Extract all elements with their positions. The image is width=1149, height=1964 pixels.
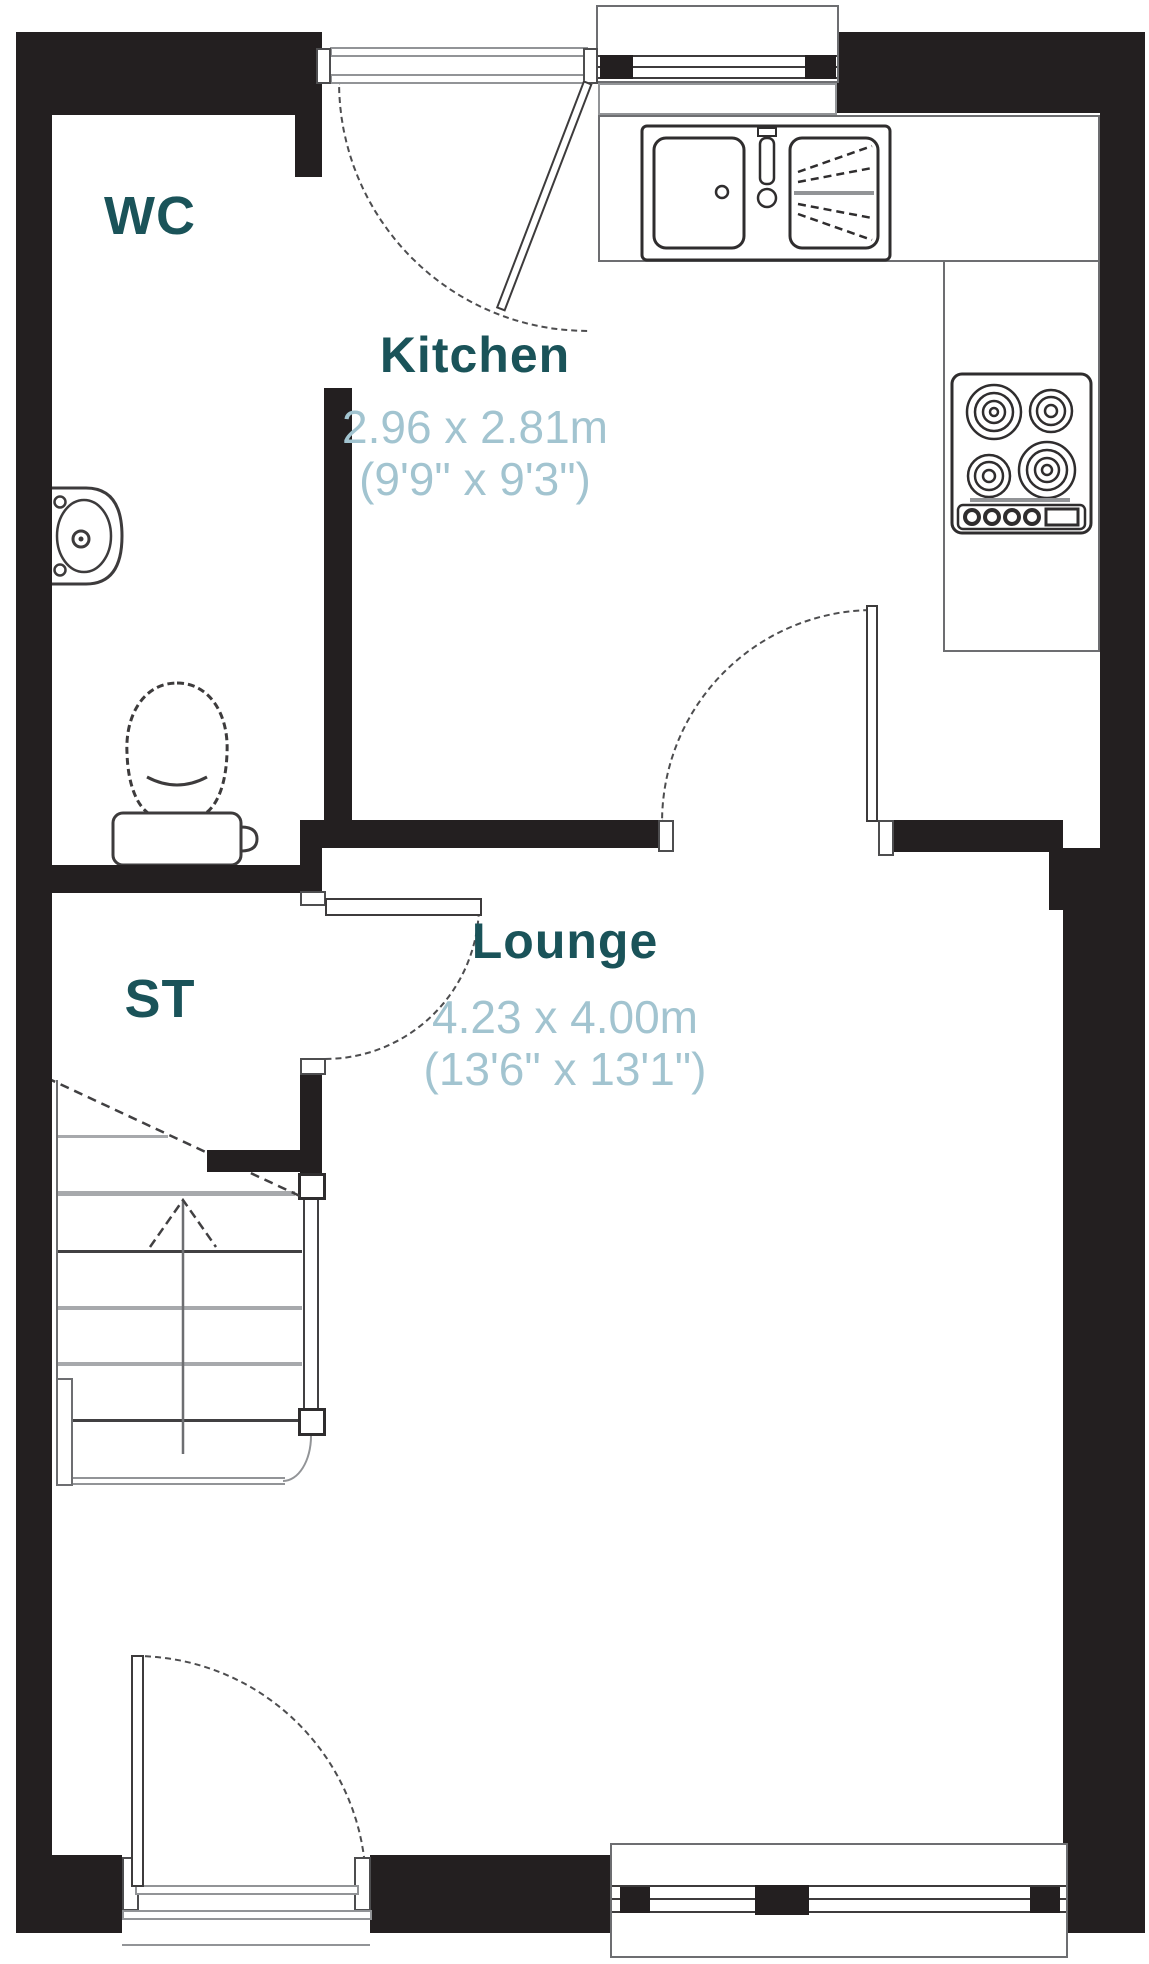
st-door-jamb: [300, 1058, 326, 1075]
lounge-window-mullion: [755, 1885, 809, 1915]
wall-wc-kitchen-pillar: [295, 82, 322, 177]
kitchen-window-sill: [598, 83, 837, 115]
wall-top-left: [16, 32, 322, 115]
lounge-dims-imperial: (13'6" x 13'1"): [380, 1042, 750, 1096]
wall-bottom-right: [1065, 1855, 1145, 1933]
toilet: [105, 675, 260, 870]
entrance-door-frame: [330, 47, 588, 57]
entrance-door-jamb: [316, 48, 331, 84]
kitchen-sink: [640, 124, 892, 262]
wall-left: [16, 32, 52, 1933]
front-door-threshold: [122, 1910, 372, 1920]
kitchen-window-cap: [805, 55, 836, 79]
kitchen-dims-metric: 2.96 x 2.81m: [295, 400, 655, 454]
wall-bottom-left: [16, 1855, 122, 1933]
entrance-door-swing-arc: [338, 82, 588, 332]
front-door-jamb: [354, 1857, 371, 1911]
lounge-label: Lounge: [415, 912, 715, 970]
wall-lounge-right-of-door: [892, 820, 1063, 852]
wall-right-lounge: [1063, 908, 1145, 1933]
front-door-threshold: [135, 1885, 359, 1895]
wc-label: WC: [75, 185, 225, 247]
lounge-window-glazing: [612, 1885, 1066, 1913]
lounge-dims-metric: 4.23 x 4.00m: [390, 990, 740, 1044]
wall-connector: [300, 848, 322, 893]
wall-kitchen-lounge: [300, 820, 672, 848]
kitchen-window-cap: [600, 55, 633, 79]
floor-plan: WC Kitchen 2.96 x 2.81m (9'9" x 9'3") ST…: [0, 0, 1149, 1964]
front-door-leaf: [131, 1655, 144, 1887]
wall-st-right: [300, 1060, 322, 1173]
wall-right-kitchen: [1100, 32, 1145, 855]
st-label: ST: [95, 968, 225, 1030]
wall-bottom-mid: [370, 1855, 620, 1933]
wash-basin: [48, 486, 126, 586]
lounge-window-cap: [620, 1887, 650, 1913]
kitchen-door-leaf: [866, 605, 878, 822]
st-door-jamb: [300, 891, 326, 906]
wall-right-step: [1049, 848, 1145, 910]
wall-top-right: [837, 32, 1145, 113]
entrance-door-frame: [330, 74, 588, 84]
staircase-annotations: [40, 1070, 320, 1470]
wall-wc-st: [16, 865, 300, 893]
kitchen-door-swing-arc: [661, 609, 874, 822]
kitchen-label: Kitchen: [325, 326, 625, 384]
kitchen-door-jamb: [878, 820, 894, 856]
front-door-swing-arc: [135, 1655, 367, 1887]
stair-bottom-rail: [73, 1477, 285, 1485]
kitchen-window-glazing: [598, 55, 837, 79]
wall-understair: [207, 1150, 300, 1172]
hob: [950, 372, 1093, 535]
front-door-outer-line: [122, 1944, 370, 1946]
lounge-window-cap: [1030, 1887, 1060, 1913]
kitchen-door-jamb: [658, 820, 674, 852]
kitchen-dims-imperial: (9'9" x 9'3"): [295, 452, 655, 506]
entrance-door-jamb: [583, 48, 598, 84]
